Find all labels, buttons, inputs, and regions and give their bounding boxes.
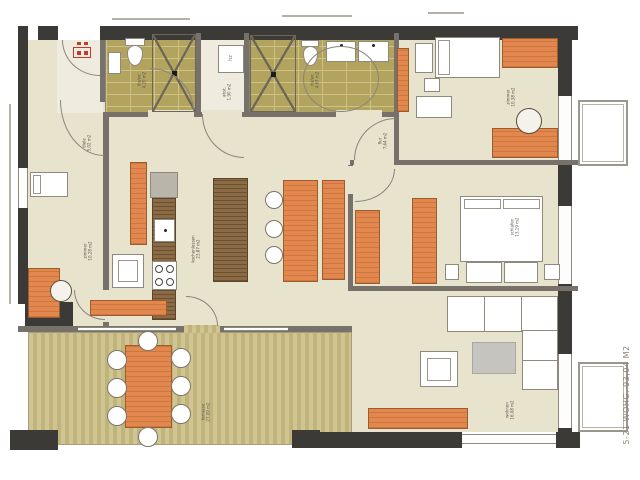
nightstand — [415, 43, 433, 73]
dimension-line — [282, 15, 352, 17]
dining-table — [213, 178, 248, 282]
window-child-room — [558, 96, 572, 164]
window-bedroom — [558, 206, 572, 284]
double-bed — [460, 196, 543, 262]
chair — [265, 246, 283, 264]
wall-top-stub — [38, 26, 58, 40]
sofa — [522, 330, 558, 390]
wall-right-a — [558, 40, 572, 96]
washbasin-icon — [108, 52, 121, 74]
wall-left-lower — [18, 208, 28, 304]
chair — [171, 376, 191, 396]
door-opening-terrace — [184, 325, 220, 333]
chair — [138, 331, 158, 351]
nightstand — [544, 264, 560, 280]
chair — [138, 427, 158, 447]
chair — [516, 108, 542, 134]
balcony — [578, 100, 628, 166]
bench — [322, 180, 345, 280]
heater-label: hz — [228, 55, 234, 61]
wardrobe — [502, 38, 558, 68]
unit-area-label: 5-21 WOHG. 93,04 M2 — [622, 330, 634, 460]
door-swing-arc — [303, 46, 379, 112]
wall-bedroom-living — [350, 286, 578, 291]
dimension-line — [9, 104, 11, 304]
wardrobe — [412, 198, 437, 284]
balcony-door-living — [558, 354, 572, 428]
chair — [171, 404, 191, 424]
dining-table — [283, 180, 318, 282]
wall-left-upper — [18, 26, 28, 168]
chair — [171, 348, 191, 368]
switch-icon — [84, 42, 88, 45]
wall-storage-bath2 — [244, 33, 249, 115]
chair — [107, 350, 127, 370]
dimension-line — [428, 12, 464, 14]
chair — [50, 280, 72, 302]
sink-icon — [154, 219, 175, 242]
desk — [416, 96, 452, 118]
wall-terrace-stub — [292, 430, 320, 448]
shower-icon — [250, 35, 296, 112]
wall-right-b — [558, 164, 572, 206]
stove-icon — [152, 261, 177, 290]
window-terrace-b — [224, 327, 288, 331]
bed-bench — [466, 262, 502, 283]
wall-bath1-storage — [196, 33, 201, 115]
wardrobe — [355, 210, 380, 284]
single-bed — [435, 37, 500, 78]
terrace-table — [125, 345, 172, 428]
armchair — [112, 254, 144, 288]
wall-bottom-left — [320, 432, 462, 448]
chair — [424, 78, 440, 92]
window-left — [18, 168, 28, 208]
wardrobe — [397, 48, 409, 112]
balcony — [578, 362, 628, 432]
sofa — [447, 296, 558, 332]
window-bottom — [462, 434, 556, 444]
bed-bench — [504, 262, 538, 283]
rug — [472, 342, 516, 374]
intercom-icon — [73, 47, 91, 58]
door-opening-bedroom — [347, 166, 354, 194]
chair — [107, 406, 127, 426]
kitchen-cupboard — [130, 162, 147, 245]
nightstand — [445, 264, 459, 280]
window-terrace-a — [78, 327, 176, 331]
chair — [265, 220, 283, 238]
wall-right-c — [558, 284, 572, 354]
wall-right-d — [558, 428, 572, 448]
wall-terrace-corner — [10, 430, 58, 450]
dimension-line — [112, 18, 190, 20]
wall-vestibule — [100, 40, 105, 102]
armchair — [420, 351, 458, 387]
sideboard — [368, 408, 468, 429]
switch-icon — [77, 42, 81, 45]
chair — [265, 191, 283, 209]
single-bed — [30, 172, 68, 197]
chair — [107, 378, 127, 398]
heater-unit: hz — [218, 45, 244, 73]
fridge — [150, 172, 178, 198]
floor-plan: hz — [0, 0, 640, 480]
